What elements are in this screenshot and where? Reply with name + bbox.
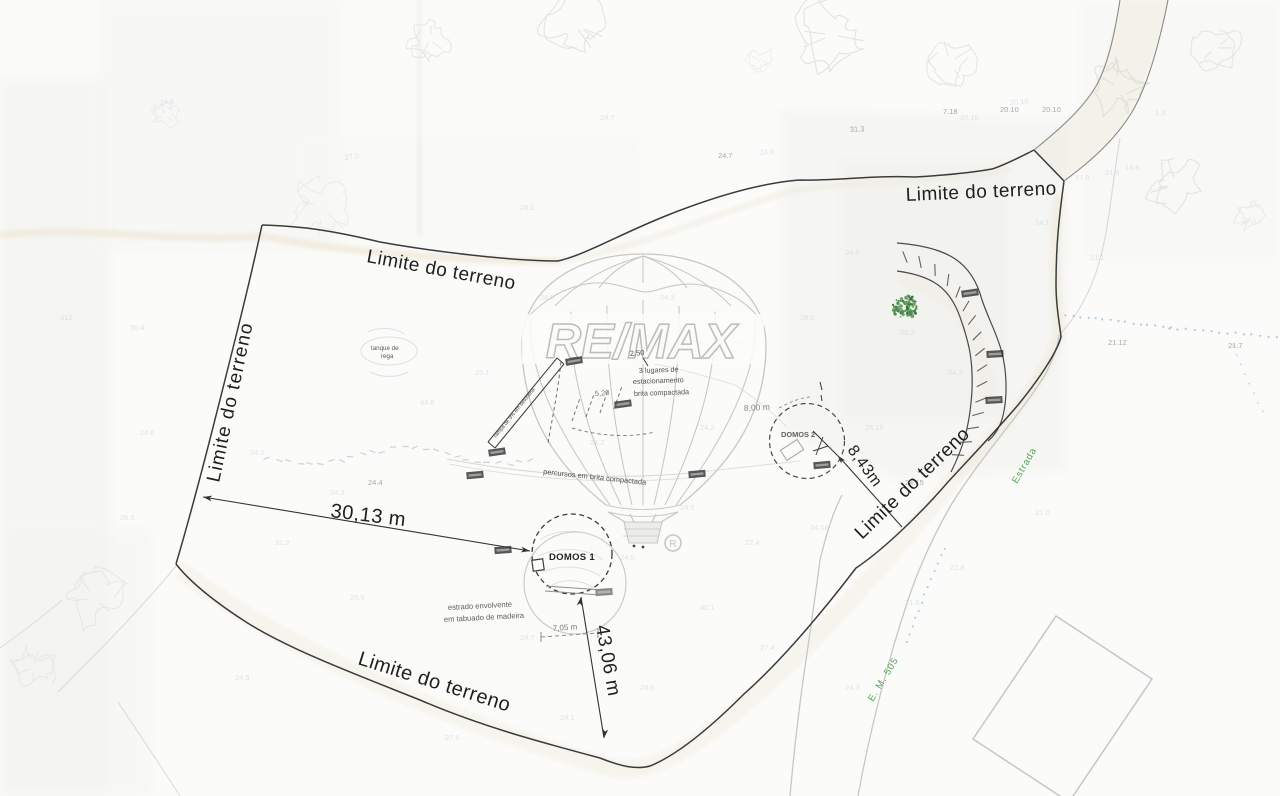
svg-text:31.3: 31.3 [850,124,865,134]
svg-text:21.1: 21.1 [1090,253,1105,262]
svg-text:31.8: 31.8 [1105,168,1120,177]
svg-text:7.18: 7.18 [943,107,958,116]
svg-text:20.10: 20.10 [1042,105,1061,114]
svg-text:17.8: 17.8 [1075,173,1090,182]
svg-text:24.9: 24.9 [760,147,775,157]
svg-text:3 lugares de: 3 lugares de [639,365,679,375]
svg-text:24.1: 24.1 [520,203,535,212]
svg-text:24.3: 24.3 [845,683,860,692]
svg-text:24.0: 24.0 [845,248,860,257]
svg-text:31.2: 31.2 [275,538,290,547]
svg-text:1.3: 1.3 [1155,108,1165,117]
svg-text:14.1: 14.1 [1035,218,1050,227]
svg-text:rega: rega [381,353,394,360]
svg-text:25.9: 25.9 [350,593,365,602]
svg-text:26.10: 26.10 [865,423,884,432]
svg-text:24.0: 24.0 [620,553,635,562]
svg-text:30.4: 30.4 [130,323,145,332]
svg-text:brita compactada: brita compactada [634,387,689,398]
svg-text:tanque de: tanque de [371,345,399,352]
svg-text:21.7: 21.7 [1228,341,1243,350]
svg-text:8,00 m: 8,00 m [744,402,770,413]
svg-text:24.7: 24.7 [520,633,535,642]
svg-text:R: R [669,539,676,550]
svg-text:25.1: 25.1 [475,368,490,377]
svg-text:24.8: 24.8 [159,97,174,107]
svg-text:24.3: 24.3 [948,368,963,377]
svg-text:24.2: 24.2 [700,423,715,432]
svg-text:21.8: 21.8 [950,563,965,572]
svg-text:24.9: 24.9 [235,673,250,682]
svg-text:DOMOS 1: DOMOS 1 [549,552,595,563]
svg-text:20.10: 20.10 [1000,105,1019,114]
svg-text:24.18: 24.18 [810,523,829,532]
svg-text:21.5: 21.5 [905,598,920,607]
svg-text:14.8: 14.8 [1125,163,1140,172]
svg-text:24.7: 24.7 [600,113,615,122]
svg-text:24.5: 24.5 [640,683,655,692]
svg-text:24.0: 24.0 [250,448,265,457]
svg-text:22.4: 22.4 [745,538,760,547]
svg-text:312: 312 [60,313,73,322]
svg-text:24.4: 24.4 [368,478,383,487]
svg-text:21.12: 21.12 [1108,338,1127,347]
svg-text:27.4: 27.4 [760,643,775,652]
svg-text:44.6: 44.6 [420,398,435,407]
svg-text:24.6: 24.6 [140,428,155,437]
svg-text:7,05 m: 7,05 m [553,622,578,633]
svg-text:5,20: 5,20 [595,388,610,398]
svg-text:24.7: 24.7 [718,151,733,160]
svg-text:24.5: 24.5 [680,503,695,512]
svg-text:DOMOS 2: DOMOS 2 [781,430,815,439]
svg-text:2,50: 2,50 [630,348,645,358]
svg-text:21.0: 21.0 [1035,508,1050,517]
svg-text:40.1: 40.1 [700,603,715,612]
svg-text:28.2: 28.2 [900,328,915,337]
svg-text:estacionamento: estacionamento [633,375,684,386]
svg-text:28.0: 28.0 [800,313,815,322]
svg-text:27.6: 27.6 [445,733,460,742]
svg-text:26.9: 26.9 [120,513,135,522]
svg-text:24.3: 24.3 [660,293,675,302]
svg-text:20.10: 20.10 [960,113,979,122]
svg-text:24.1: 24.1 [560,713,575,722]
svg-text:24.2: 24.2 [590,438,605,447]
svg-text:24.3: 24.3 [330,488,345,497]
